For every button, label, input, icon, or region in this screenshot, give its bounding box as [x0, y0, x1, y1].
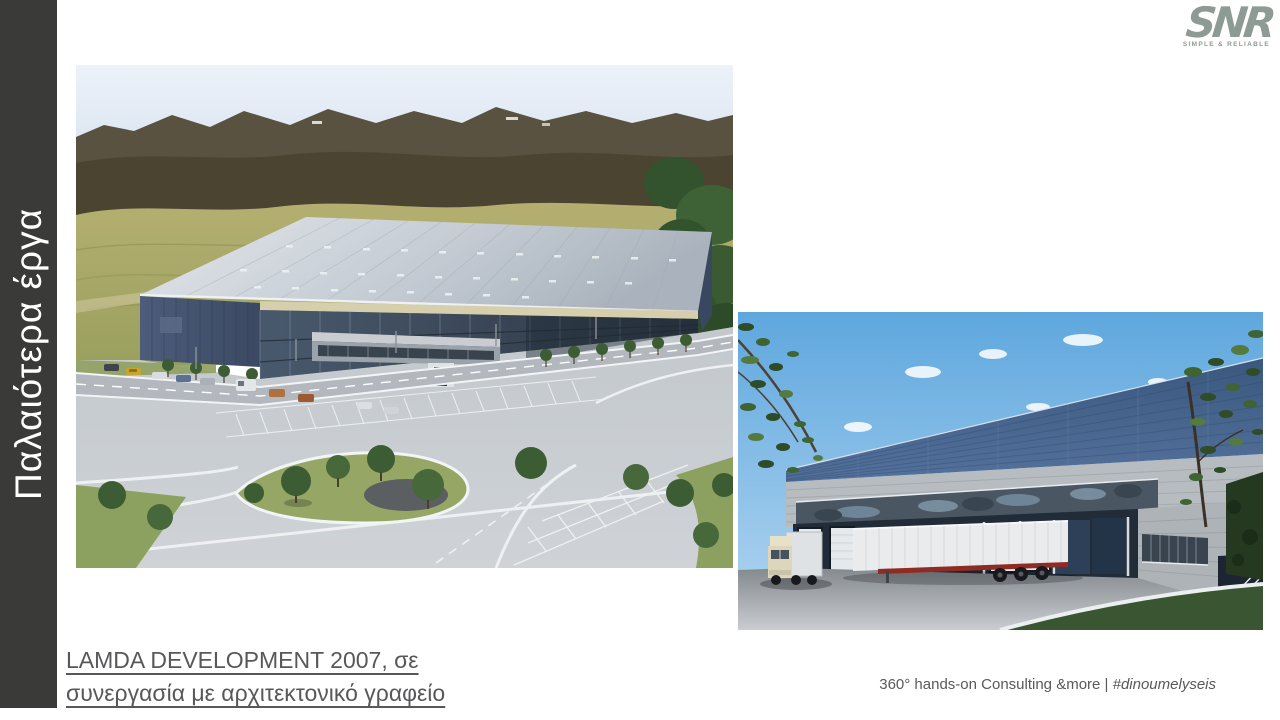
caption-lamda: LAMDA DEVELOPMENT 2007, σε συνεργασία με… [66, 644, 445, 709]
semi-trailer [843, 521, 1083, 585]
footer-text: 360° hands-on Consulting &more | [879, 676, 1112, 693]
warehouse-aerial-graphic [76, 65, 733, 568]
loading-dock-graphic [738, 312, 1263, 630]
sidebar-title: Παλαιότερα έργα [8, 208, 50, 500]
box-truck [760, 532, 832, 590]
footer-tagline: 360° hands-on Consulting &more | #dinoum… [879, 676, 1216, 693]
caption-line-2: συνεργασία με αρχιτεκτονικό γραφείο [66, 677, 445, 710]
image-warehouse-aerial [76, 65, 733, 568]
snr-logo: SNR SIMPLE & RELIABLE [1132, 2, 1272, 48]
sidebar-strip: Παλαιότερα έργα [0, 0, 57, 708]
slide-canvas: Παλαιότερα έργα SNR SIMPLE & RELIABLE [0, 0, 1280, 720]
image-loading-dock [738, 312, 1263, 630]
snr-logo-text: SNR [1130, 2, 1274, 44]
caption-line-1: LAMDA DEVELOPMENT 2007, σε [66, 644, 445, 677]
footer-hashtag: #dinoumelyseis [1113, 676, 1216, 693]
